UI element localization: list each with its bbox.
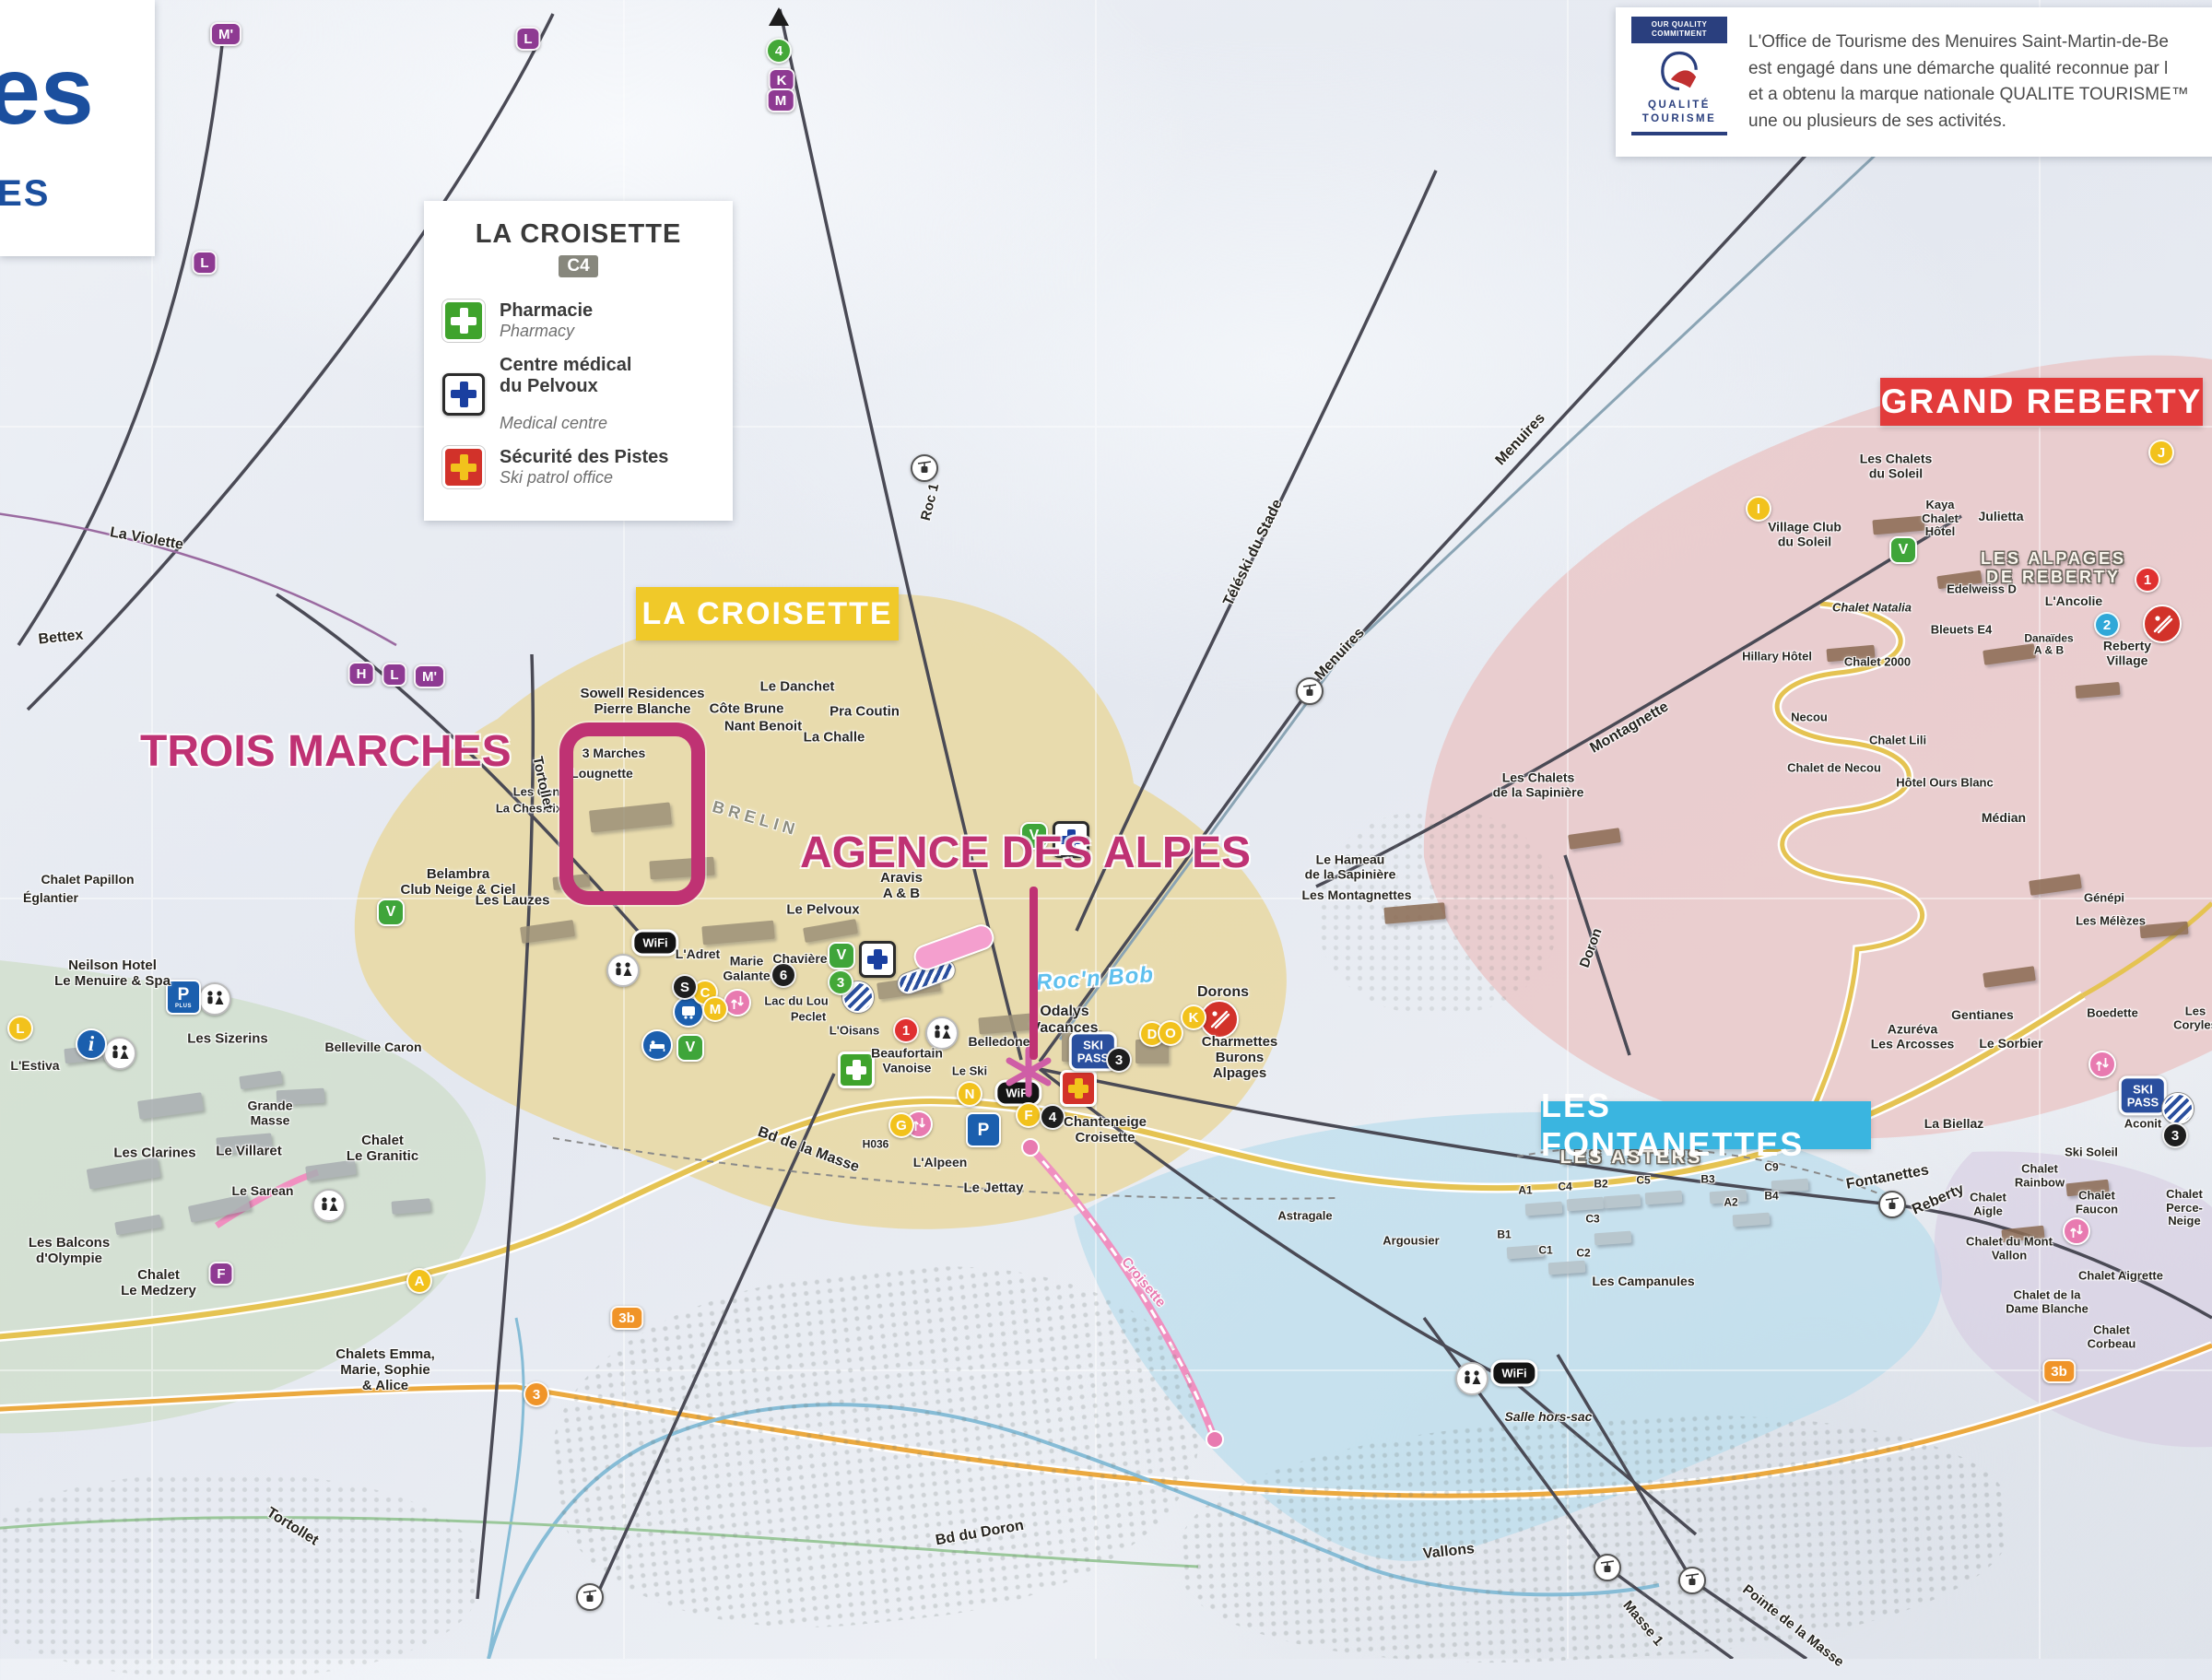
- map-label: Grande Masse: [247, 1098, 292, 1127]
- parking-icon: P: [966, 1112, 1001, 1147]
- map-label: Belleville Caron: [324, 1040, 421, 1055]
- map-label: Hillary Hôtel: [1742, 651, 1812, 664]
- qualite-tourisme-logo-text: QUALITÉ TOURISME: [1631, 99, 1727, 135]
- map-label: H036: [863, 1138, 889, 1150]
- map-badge: L: [515, 27, 540, 51]
- building: [1604, 1194, 1641, 1209]
- quality-tourism-panel: OUR QUALITY COMMITMENT QUALITÉ TOURISME …: [1616, 7, 2212, 157]
- building: [1525, 1202, 1563, 1216]
- map-label: Les Balcons d'Olympie: [29, 1236, 110, 1267]
- map-badge: 3: [2162, 1122, 2188, 1148]
- toilets-icon: [1455, 1362, 1488, 1395]
- map-badge: 4: [766, 38, 792, 64]
- map-badge: 2: [2094, 612, 2120, 638]
- trois-marches-highlight-label: TROIS MARCHES: [140, 726, 512, 777]
- map-label: Chalet Aigle: [1970, 1191, 2006, 1217]
- map-label: Côte Brune: [710, 702, 784, 718]
- map-label: Dorons: [1197, 984, 1249, 1001]
- trois-marches-highlight-box: [559, 723, 705, 905]
- banner-la-croisette: LA CROISETTE: [636, 587, 899, 640]
- map-label: Chalet Le Medzery: [121, 1268, 196, 1299]
- map-badge: 1: [2135, 567, 2160, 593]
- wifi-icon: WiFi: [1490, 1360, 1537, 1387]
- toilets-icon: [606, 954, 640, 987]
- qualite-tourisme-logo-icon: [1655, 47, 1703, 95]
- map-label: Chalet Papillon: [41, 873, 134, 887]
- map-label: Le Hameau de la Sapinière: [1305, 852, 1396, 881]
- map-label: Chalet Lili: [1869, 734, 1926, 748]
- legend-grid-ref: C4: [559, 255, 597, 277]
- map-badge: F: [208, 1262, 233, 1286]
- magic-carpet-icon: [2162, 1093, 2194, 1124]
- building: [1548, 1261, 1586, 1275]
- map-label: L'Estiva: [10, 1059, 59, 1074]
- lift-arrows-icon: [2088, 1051, 2116, 1078]
- ski-patrol-icon: [1060, 1070, 1097, 1107]
- map-label: Necou: [1791, 711, 1828, 725]
- lift-station-icon: [1678, 1567, 1706, 1594]
- legend-ski-patrol-en: Ski patrol office: [500, 468, 668, 488]
- map-label: C4: [1558, 1181, 1571, 1192]
- resort-logo-subtext: LÉES: [0, 173, 50, 215]
- map-label: Chalet du Mont Vallon: [1966, 1235, 2053, 1262]
- village-v-icon: V: [1889, 536, 1917, 564]
- map-label: Les Chalets de la Sapinière: [1493, 770, 1584, 799]
- map-label: Le Jettay: [963, 1181, 1023, 1197]
- map-label: Aconit: [2124, 1118, 2161, 1132]
- quality-line: et a obtenu la marque nationale QUALITE …: [1748, 82, 2189, 109]
- ski-patrol-cross-icon: [442, 446, 485, 488]
- wifi-icon: WiFi: [631, 930, 678, 957]
- map-label: Marie Galante: [723, 954, 770, 982]
- village-v-icon: V: [828, 942, 855, 969]
- quality-badge: OUR QUALITY COMMITMENT: [1631, 17, 1727, 43]
- pharmacy-cross-icon: [442, 300, 485, 342]
- map-label: Gentianes: [1951, 1008, 2014, 1023]
- map-label: Le Villaret: [216, 1145, 281, 1160]
- zone-reberty: [1424, 356, 2212, 1139]
- map-badge: N: [957, 1081, 982, 1107]
- village-v-icon: V: [677, 1034, 704, 1062]
- legend-item-ski-patrol: Sécurité des Pistes Ski patrol office: [442, 446, 714, 488]
- map-label: L'Alpeen: [913, 1156, 968, 1170]
- map-label: C2: [1576, 1247, 1590, 1259]
- map-badge: M: [767, 88, 795, 112]
- map-label: Les Mélèzes: [2076, 915, 2146, 929]
- map-label: Hôtel Ours Blanc: [1896, 777, 1993, 791]
- map-label: Le Pelvoux: [786, 903, 859, 919]
- banner-grand-reberty: GRAND REBERTY: [1880, 378, 2203, 426]
- forest-texture: [0, 1474, 479, 1677]
- village-v-icon: V: [377, 899, 405, 926]
- map-label: Kaya Chalet Hôtel: [1922, 499, 1959, 539]
- legend-medical-fr: Centre médical du Pelvoux: [500, 355, 631, 397]
- toilets-icon: [312, 1189, 346, 1222]
- map-label: L'Oisans: [829, 1025, 879, 1039]
- map-label: Le Sarean: [232, 1184, 294, 1199]
- ski-resort-map: WiFiWiFiWiFiiPPLUSPSKIPASSSKIPASSVVVVV M…: [0, 0, 2212, 1659]
- map-label: Chalet Aigrette: [2078, 1270, 2163, 1284]
- lift-station-icon: [1878, 1191, 1906, 1218]
- map-label: Chanteneige Croisette: [1064, 1115, 1147, 1146]
- map-label: Les Campanules: [1592, 1275, 1694, 1289]
- map-label: Village Club du Soleil: [1768, 520, 1841, 548]
- ski-pass-icon: SKIPASS: [2119, 1075, 2167, 1115]
- map-badge: M': [210, 22, 241, 46]
- map-label: C5: [1636, 1174, 1650, 1186]
- map-label: Ski Soleil: [2065, 1146, 2118, 1160]
- legend-pharmacy-fr: Pharmacie: [500, 300, 593, 322]
- map-label: Chalet Le Granitic: [347, 1134, 418, 1165]
- direction-arrow-icon: [769, 7, 789, 26]
- map-label: Chalet Natalia: [1832, 602, 1912, 616]
- agence-des-alpes-label: AGENCE DES ALPES: [800, 828, 1251, 878]
- legend-panel: LA CROISETTE C4 Pharmacie Pharmacy Centr…: [424, 201, 733, 521]
- map-badge: 4: [1040, 1104, 1065, 1130]
- map-label: Odalys Vacances: [1031, 1004, 1099, 1037]
- map-badge: 3: [1106, 1047, 1132, 1073]
- map-label: Chalet de la Dame Blanche: [2006, 1288, 2088, 1315]
- map-label: A1: [1518, 1184, 1532, 1196]
- pharmacy-icon: [838, 1051, 875, 1088]
- parking-icon: PPLUS: [166, 980, 201, 1015]
- quality-line: est engagé dans une démarche qualité rec…: [1748, 56, 2189, 83]
- legend-pharmacy-en: Pharmacy: [500, 322, 593, 341]
- agence-des-alpes-pointer: [1030, 887, 1038, 1060]
- map-badge: L: [382, 663, 406, 687]
- map-label: Chalet 2000: [1844, 656, 1911, 670]
- toilets-icon: [103, 1037, 136, 1070]
- map-label: La Biellaz: [1924, 1117, 1984, 1132]
- map-badge: L: [7, 1016, 33, 1041]
- map-label: La Challe: [804, 731, 865, 746]
- info-icon: i: [76, 1028, 107, 1060]
- map-badge: S: [672, 974, 698, 1000]
- building: [1645, 1191, 1683, 1205]
- toilets-icon: [198, 982, 231, 1016]
- map-badge: J: [2148, 440, 2174, 465]
- map-label: B2: [1594, 1178, 1607, 1190]
- map-label: Beaufortain Vanoise: [871, 1046, 943, 1075]
- map-label: Pra Coutin: [829, 705, 900, 721]
- legend-item-pharmacy: Pharmacie Pharmacy: [442, 300, 714, 342]
- map-label: Astragale: [1277, 1210, 1332, 1224]
- map-label: C3: [1585, 1213, 1599, 1225]
- medical-centre-icon: [859, 941, 896, 978]
- map-label: C1: [1538, 1244, 1552, 1256]
- quality-paragraph: L'Office de Tourisme des Menuires Saint-…: [1748, 17, 2189, 147]
- map-badge: H: [348, 662, 375, 686]
- legend-ski-patrol-fr: Sécurité des Pistes: [500, 447, 668, 468]
- map-badge: 1: [893, 1017, 919, 1043]
- map-label: L'Adret: [676, 947, 720, 962]
- legend-medical-en: Medical centre: [500, 414, 631, 433]
- map-label: A2: [1724, 1196, 1737, 1208]
- map-label: Neilson Hotel Le Menuire & Spa: [54, 958, 171, 990]
- map-badge: I: [1746, 496, 1771, 522]
- map-label: Chalet Corbeau: [2088, 1323, 2136, 1350]
- map-label: Peclet: [791, 1011, 826, 1025]
- map-badge: 3: [524, 1381, 549, 1407]
- map-label: Argousier: [1382, 1235, 1439, 1249]
- map-label: Chalet Faucon: [2076, 1189, 2118, 1216]
- map-label: Bleuets E4: [1931, 624, 1992, 638]
- lift-station-icon: [911, 454, 938, 482]
- building: [1594, 1231, 1632, 1246]
- accommodation-icon: [641, 1029, 673, 1061]
- map-label: Les Chalets du Soleil: [1860, 452, 1933, 480]
- map-label: Les Coryles: [2173, 1004, 2212, 1031]
- map-label: Chavière: [772, 952, 827, 967]
- banner-les-fontanettes: LES FONTANETTES: [1541, 1101, 1871, 1149]
- lift-station-icon: [1296, 677, 1324, 705]
- map-label: Danaïdes A & B: [2024, 633, 2073, 658]
- lift-arrows-icon: [2063, 1217, 2090, 1245]
- lift-station-icon: [576, 1583, 604, 1611]
- map-label: Sowell Residences Pierre Blanche: [580, 687, 704, 718]
- map-badge: A: [406, 1268, 432, 1294]
- map-label: Julietta: [1978, 510, 2023, 524]
- map-badge: M: [702, 996, 728, 1022]
- map-label: Génépi: [2084, 892, 2124, 906]
- map-badge: 3: [828, 969, 853, 995]
- map-label: Chalet de Necou: [1787, 762, 1881, 776]
- map-badge: 3b: [2042, 1359, 2076, 1383]
- map-label: Salle hors-sac: [1505, 1410, 1593, 1425]
- map-label: Le Ski: [952, 1065, 987, 1079]
- map-label: B4: [1764, 1190, 1778, 1202]
- resort-logo-text: es: [0, 37, 94, 147]
- resort-logo-box: es LÉES: [0, 0, 155, 256]
- building: [1733, 1213, 1771, 1228]
- map-label: Les Montagnettes: [1301, 888, 1411, 903]
- map-badge: M': [414, 664, 445, 688]
- map-label: Médian: [1982, 811, 2026, 826]
- agency-snowflake-icon: [1002, 1045, 1055, 1098]
- legend-title: LA CROISETTE: [424, 219, 733, 250]
- map-label: Le Sorbier: [1979, 1037, 2042, 1051]
- map-badge: F: [1016, 1102, 1041, 1128]
- map-label: LES ALPAGES DE REBERTY: [1981, 549, 2126, 586]
- map-badge: O: [1158, 1020, 1183, 1046]
- map-badge: K: [1181, 1004, 1206, 1030]
- medical-cross-icon: [442, 373, 485, 416]
- map-label: L'Ancolie: [2045, 594, 2102, 609]
- map-label: Nant Benoit: [724, 720, 802, 735]
- map-label: Boedette: [2087, 1007, 2138, 1021]
- map-badge: L: [192, 251, 217, 275]
- map-label: Le Danchet: [760, 680, 835, 696]
- map-label: Belledone: [969, 1035, 1030, 1050]
- quality-line: une ou plusieurs de ses activités.: [1748, 109, 2189, 135]
- map-label: Les Sizerins: [187, 1032, 268, 1048]
- map-label: Chalet Perce-Neige: [2166, 1188, 2203, 1228]
- map-label: B1: [1497, 1228, 1511, 1240]
- map-label: Chalet Rainbow: [2015, 1162, 2065, 1189]
- map-label: Églantier: [23, 891, 78, 906]
- map-label: Charmettes Burons Alpages: [1202, 1035, 1278, 1081]
- quality-line: L'Office de Tourisme des Menuires Saint-…: [1748, 29, 2189, 56]
- map-label: B3: [1700, 1173, 1714, 1185]
- map-label: Edelweiss D: [1947, 583, 2017, 597]
- map-badge: G: [888, 1112, 914, 1138]
- map-label: Les Lauzes: [476, 894, 550, 910]
- map-badge: 3b: [610, 1306, 643, 1330]
- legend-item-medical: Centre médical du Pelvoux Medical centre: [442, 355, 714, 433]
- map-label: Chalets Emma, Marie, Sophie & Alice: [335, 1347, 435, 1393]
- map-label: Reberty Village: [2085, 639, 2170, 667]
- map-label: Les Clarines: [113, 1146, 195, 1162]
- building: [1567, 1197, 1605, 1212]
- map-label: Lac du Lou: [764, 995, 828, 1009]
- lift-station-icon: [1594, 1554, 1621, 1581]
- map-label: Azuréva Les Arcosses: [1871, 1022, 1955, 1051]
